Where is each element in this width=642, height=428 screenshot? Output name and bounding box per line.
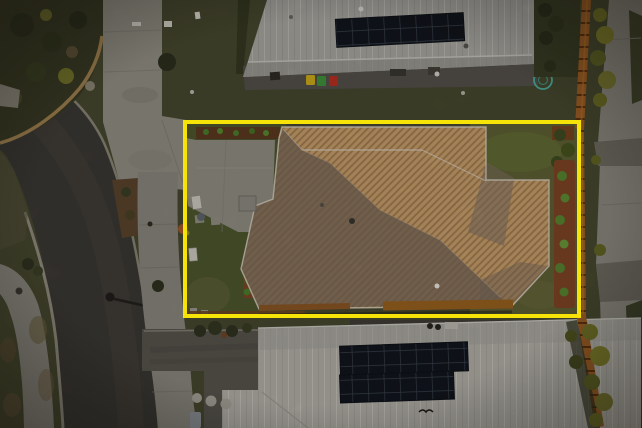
aerial-photo: [0, 0, 642, 428]
vignette: [0, 0, 642, 428]
aerial-photo-stage: [0, 0, 642, 428]
